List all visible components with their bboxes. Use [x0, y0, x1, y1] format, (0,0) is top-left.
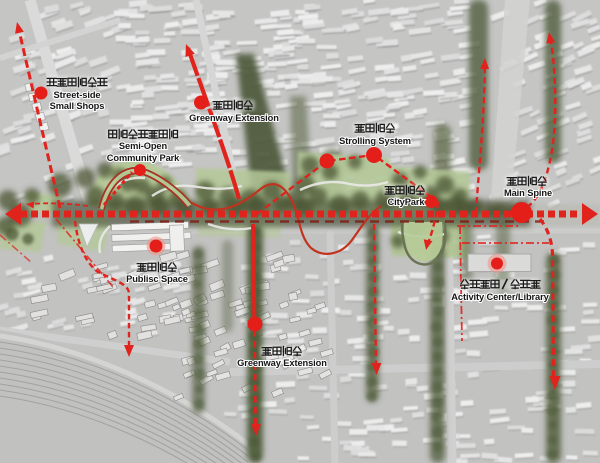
svg-text:Publisc Space: Publisc Space	[126, 274, 188, 284]
svg-text:Greenway Extension: Greenway Extension	[189, 113, 279, 123]
svg-text:Activity Center/Library: Activity Center/Library	[451, 292, 549, 302]
svg-text:Greenway Extension: Greenway Extension	[237, 358, 327, 368]
svg-text:Community Park: Community Park	[107, 153, 180, 163]
svg-text:Semi-Open: Semi-Open	[119, 141, 168, 151]
svg-text:Main Spine: Main Spine	[504, 188, 552, 198]
svg-text:Strolling System: Strolling System	[339, 136, 411, 146]
svg-text:Street-side: Street-side	[54, 90, 101, 100]
svg-text:Small Shops: Small Shops	[50, 101, 105, 111]
svg-text:CityPark: CityPark	[388, 197, 426, 207]
